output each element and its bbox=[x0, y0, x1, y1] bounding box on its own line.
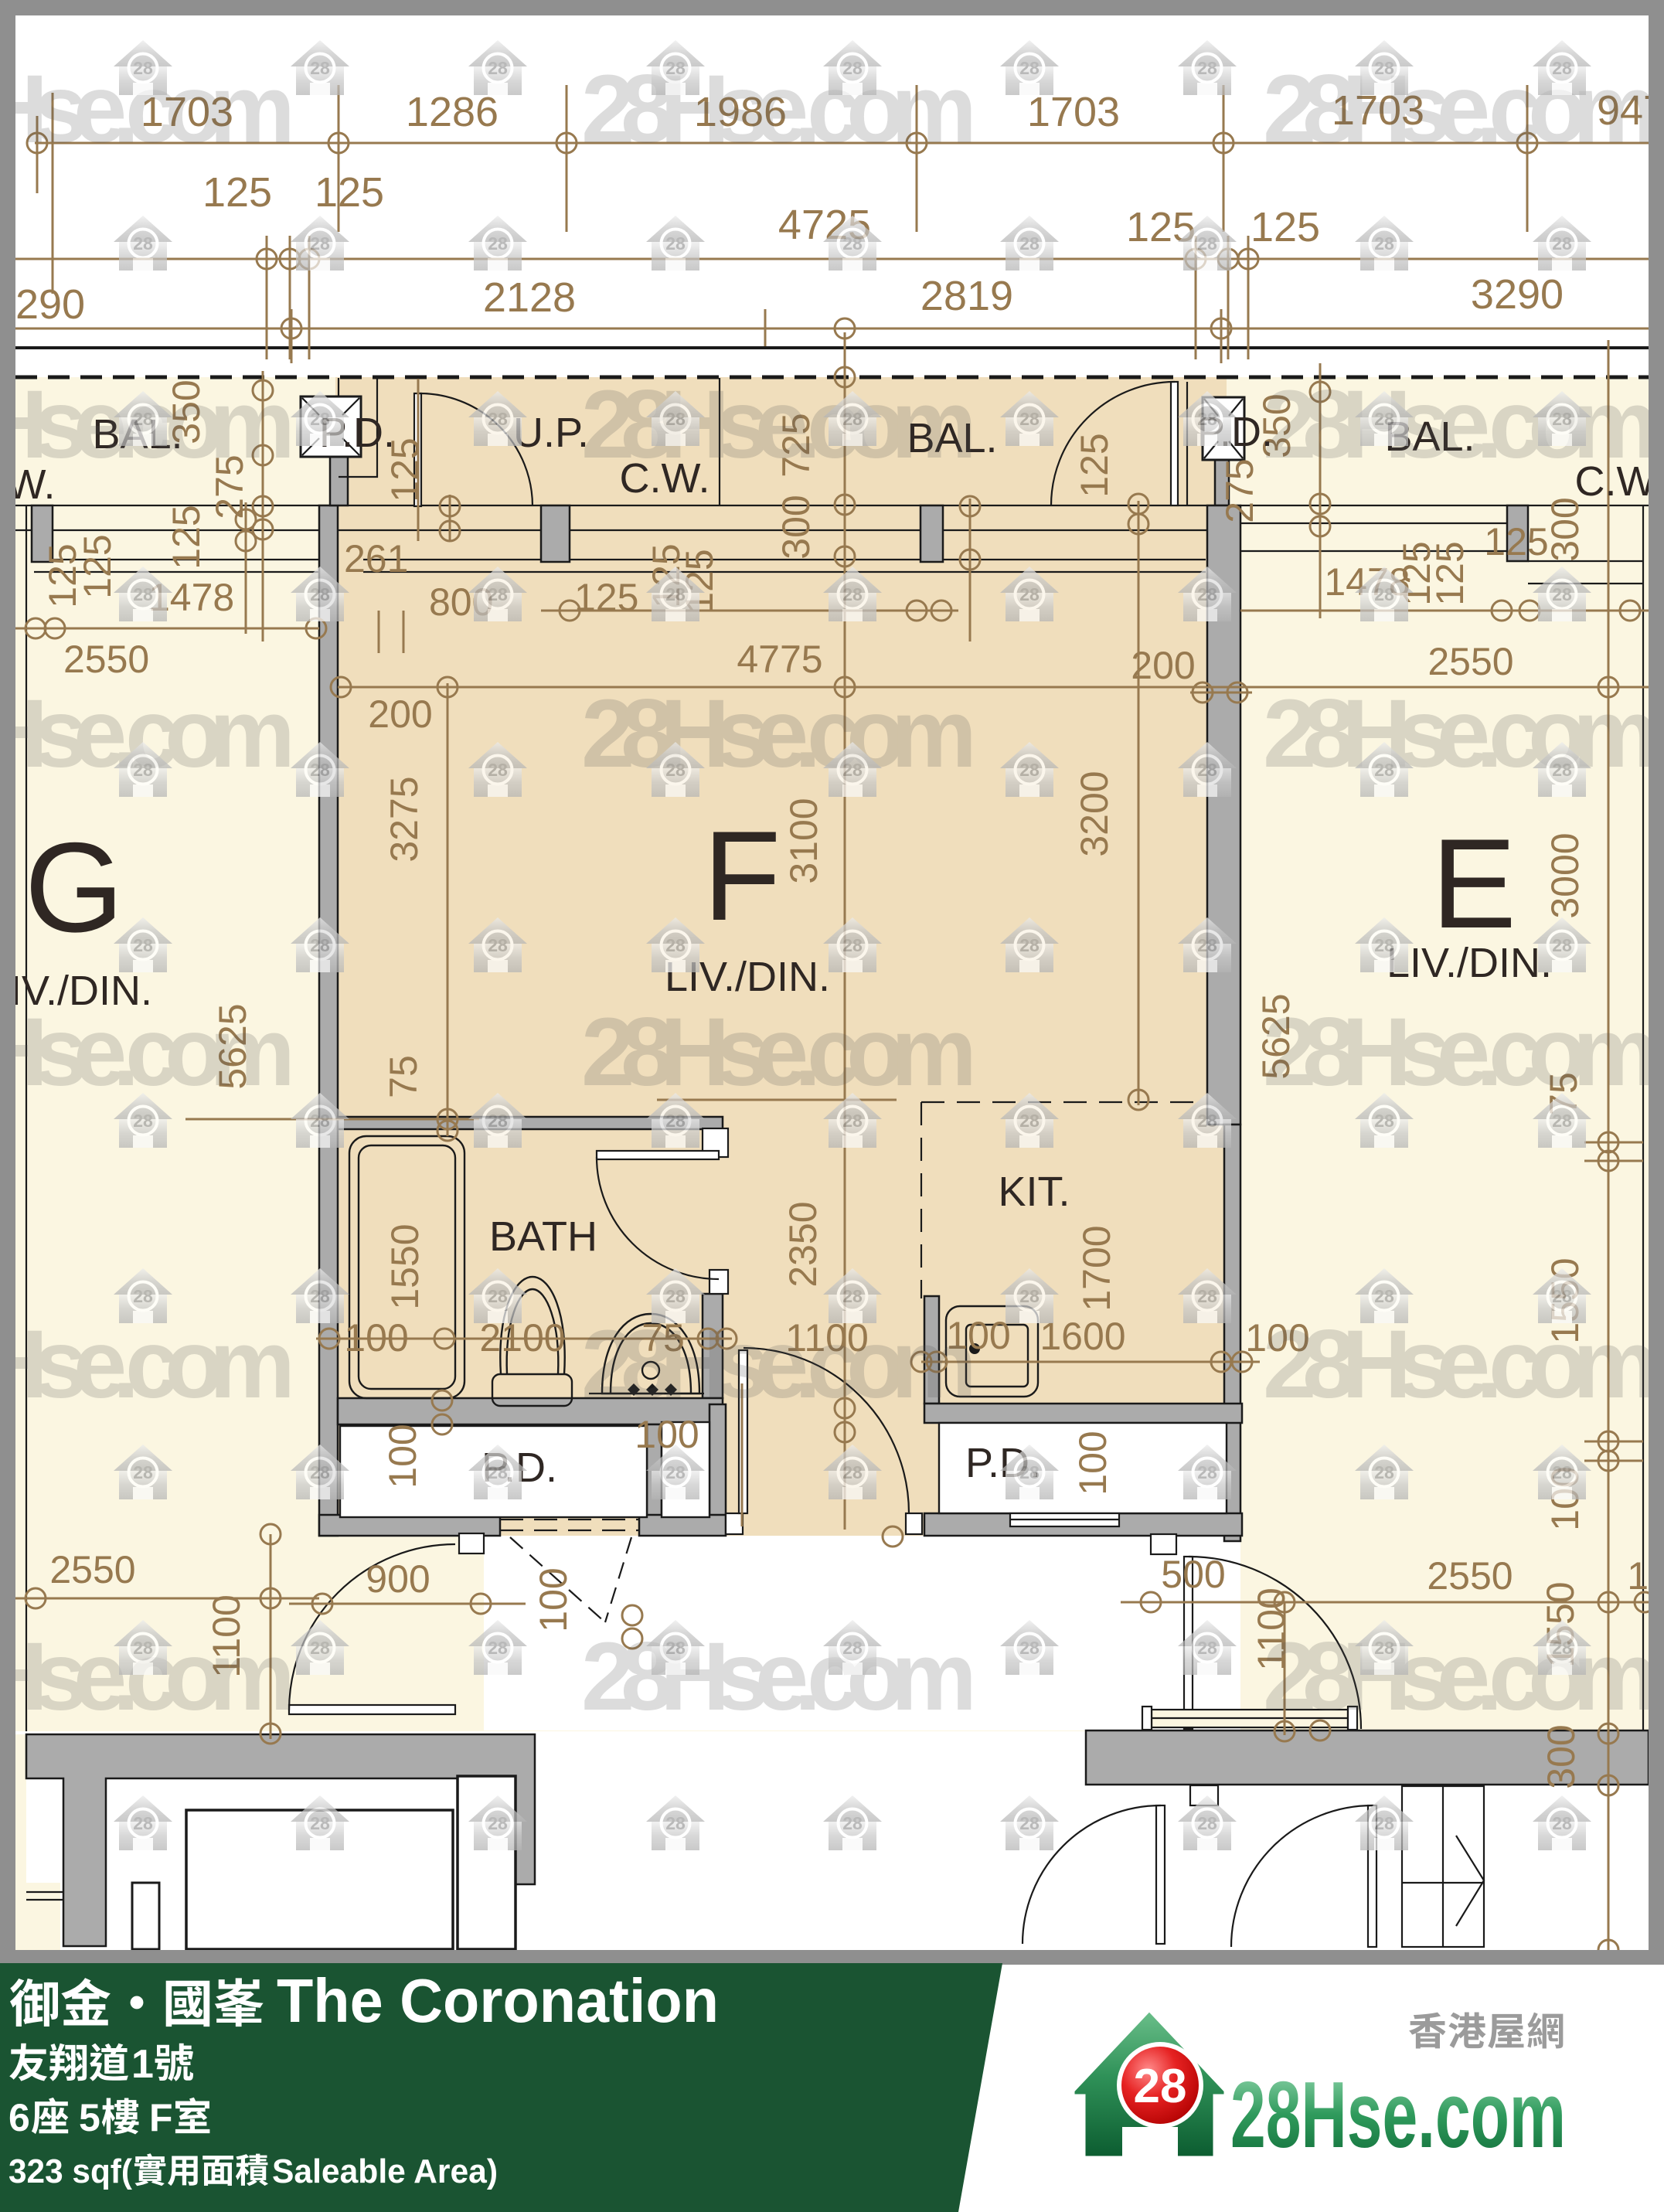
svg-text:28Hse.com: 28Hse.com bbox=[0, 999, 295, 1106]
svg-text:5: 5 bbox=[79, 2096, 100, 2139]
svg-text:261: 261 bbox=[344, 537, 408, 580]
svg-text:28Hse.com: 28Hse.com bbox=[581, 371, 977, 478]
svg-text:125: 125 bbox=[1073, 433, 1116, 497]
svg-text:F: F bbox=[149, 2096, 173, 2139]
svg-text:300: 300 bbox=[774, 495, 818, 559]
svg-text:3200: 3200 bbox=[1073, 771, 1116, 856]
svg-text:275: 275 bbox=[1218, 458, 1261, 522]
svg-text:1: 1 bbox=[131, 2042, 154, 2087]
svg-text:3290: 3290 bbox=[1471, 271, 1564, 318]
svg-text:3000: 3000 bbox=[1543, 832, 1587, 918]
svg-text:125: 125 bbox=[202, 169, 272, 216]
svg-text:4775: 4775 bbox=[737, 638, 822, 681]
svg-text:28Hse.com: 28Hse.com bbox=[1263, 56, 1659, 163]
svg-text:28Hse.com: 28Hse.com bbox=[1263, 999, 1659, 1106]
svg-text:3100: 3100 bbox=[782, 798, 825, 883]
svg-text:100: 100 bbox=[381, 1424, 424, 1488]
svg-text:500: 500 bbox=[1161, 1553, 1225, 1596]
svg-text:125: 125 bbox=[76, 534, 119, 598]
svg-text:KIT.: KIT. bbox=[998, 1169, 1070, 1215]
svg-text:28Hse.com: 28Hse.com bbox=[581, 999, 977, 1106]
svg-text:300: 300 bbox=[1543, 497, 1587, 561]
svg-text:28Hse.com: 28Hse.com bbox=[1263, 1311, 1659, 1418]
svg-text:28Hse.com: 28Hse.com bbox=[1263, 371, 1659, 478]
svg-text:E: E bbox=[1431, 812, 1516, 955]
svg-text:28Hse.com: 28Hse.com bbox=[1230, 2062, 1566, 2167]
svg-text:125: 125 bbox=[315, 169, 384, 216]
svg-text:Saleable Area): Saleable Area) bbox=[272, 2152, 498, 2190]
svg-text:28Hse.com: 28Hse.com bbox=[581, 680, 977, 788]
svg-text:28Hse.com: 28Hse.com bbox=[581, 56, 977, 163]
svg-text:28Hse.com: 28Hse.com bbox=[1263, 680, 1659, 788]
svg-text:2550: 2550 bbox=[63, 638, 149, 681]
svg-text:2550: 2550 bbox=[49, 1548, 135, 1591]
svg-text:3275: 3275 bbox=[383, 776, 426, 862]
svg-text:28: 28 bbox=[1134, 2060, 1187, 2113]
svg-text:1700: 1700 bbox=[1075, 1225, 1118, 1311]
svg-text:125: 125 bbox=[574, 576, 638, 619]
svg-text:200: 200 bbox=[1131, 644, 1195, 687]
svg-text:1703: 1703 bbox=[1027, 89, 1120, 135]
svg-text:G: G bbox=[25, 816, 124, 958]
svg-text:125: 125 bbox=[1428, 541, 1472, 605]
svg-text:6: 6 bbox=[9, 2096, 30, 2139]
svg-text:75: 75 bbox=[382, 1055, 425, 1098]
svg-text:100: 100 bbox=[1071, 1431, 1114, 1495]
svg-text:28Hse.com: 28Hse.com bbox=[581, 1623, 977, 1730]
svg-text:323 sqf(: 323 sqf( bbox=[9, 2152, 132, 2190]
svg-text:300: 300 bbox=[1540, 1724, 1583, 1788]
svg-text:100: 100 bbox=[635, 1413, 699, 1456]
svg-text:2350: 2350 bbox=[781, 1201, 825, 1287]
svg-text:1550: 1550 bbox=[383, 1223, 427, 1309]
svg-text:BATH: BATH bbox=[489, 1213, 597, 1260]
svg-text:2128: 2128 bbox=[483, 274, 576, 321]
svg-text:900: 900 bbox=[366, 1557, 430, 1601]
svg-text:125: 125 bbox=[1251, 204, 1320, 250]
svg-text:F: F bbox=[703, 805, 781, 947]
svg-text:125: 125 bbox=[165, 505, 208, 569]
svg-text:28Hse.com: 28Hse.com bbox=[0, 1311, 295, 1418]
svg-text:1286: 1286 bbox=[406, 89, 499, 135]
svg-text:2550: 2550 bbox=[1428, 640, 1513, 683]
svg-text:LIV./DIN.: LIV./DIN. bbox=[1387, 940, 1552, 986]
svg-text:125: 125 bbox=[1484, 520, 1548, 563]
svg-text:The Coronation: The Coronation bbox=[277, 1966, 719, 2035]
svg-text:28Hse.com: 28Hse.com bbox=[581, 1311, 977, 1418]
svg-text:2550: 2550 bbox=[1427, 1554, 1513, 1598]
svg-text:100: 100 bbox=[344, 1316, 408, 1360]
svg-text:100: 100 bbox=[532, 1567, 575, 1632]
svg-text:2819: 2819 bbox=[920, 273, 1013, 319]
svg-text:200: 200 bbox=[368, 693, 432, 736]
svg-text:28Hse.com: 28Hse.com bbox=[1263, 1623, 1659, 1730]
